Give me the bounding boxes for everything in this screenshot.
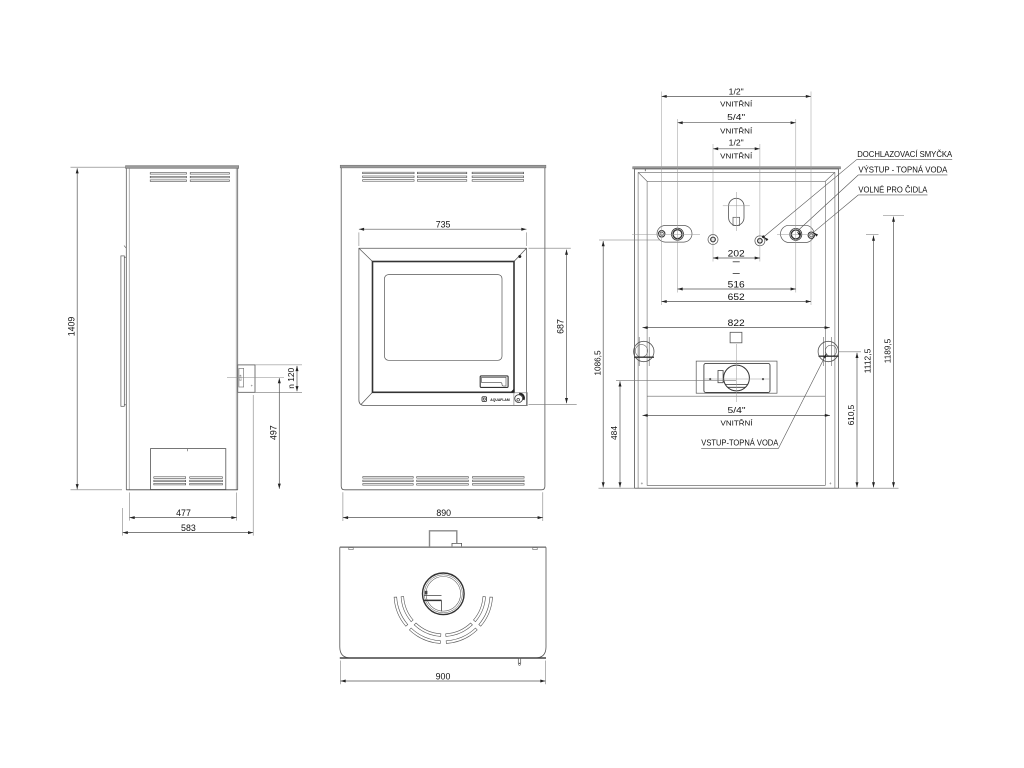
svg-text:1/2": 1/2"	[729, 139, 744, 148]
svg-text:484: 484	[609, 426, 619, 440]
svg-text:687: 687	[556, 319, 566, 334]
svg-text:1/2": 1/2"	[729, 87, 744, 96]
svg-text:1112,5: 1112,5	[864, 348, 873, 373]
svg-text:VNITŘNÍ: VNITŘNÍ	[720, 152, 753, 161]
svg-text:DOCHLAZOVACÍ SMYČKA: DOCHLAZOVACÍ SMYČKA	[857, 149, 953, 159]
svg-text:VSTUP-TOPNÁ VODA: VSTUP-TOPNÁ VODA	[701, 437, 778, 447]
svg-text:+: +	[829, 481, 832, 486]
svg-text:5/4": 5/4"	[727, 113, 745, 122]
svg-text:VÝSTUP - TOPNÁ VODA: VÝSTUP - TOPNÁ VODA	[858, 164, 948, 174]
svg-text:202: 202	[728, 248, 745, 258]
svg-text:VOLNÉ PRO ČIDLA: VOLNÉ PRO ČIDLA	[858, 184, 927, 194]
svg-text:610,5: 610,5	[847, 404, 856, 425]
svg-text:822: 822	[728, 318, 745, 328]
svg-text:1409: 1409	[66, 317, 76, 337]
svg-text:VNITŘNÍ: VNITŘNÍ	[720, 126, 753, 135]
svg-text:583: 583	[181, 523, 196, 533]
svg-text:890: 890	[436, 508, 451, 518]
svg-text:477: 477	[176, 508, 191, 518]
svg-text:AQUAFLAM: AQUAFLAM	[490, 398, 510, 402]
svg-text:VNITŘNÍ: VNITŘNÍ	[721, 418, 754, 427]
svg-text:900: 900	[436, 672, 451, 682]
svg-text:n 120: n 120	[287, 367, 296, 388]
svg-text:1086,5: 1086,5	[593, 350, 602, 375]
svg-text:+: +	[641, 481, 644, 486]
svg-text:497: 497	[269, 425, 279, 440]
svg-text:VNITŘNÍ: VNITŘNÍ	[720, 99, 753, 108]
svg-text:5/4": 5/4"	[728, 406, 746, 415]
svg-text:735: 735	[436, 220, 451, 230]
svg-text:516: 516	[728, 279, 745, 289]
svg-text:652: 652	[728, 292, 745, 302]
svg-text:1189,5: 1189,5	[884, 338, 893, 363]
